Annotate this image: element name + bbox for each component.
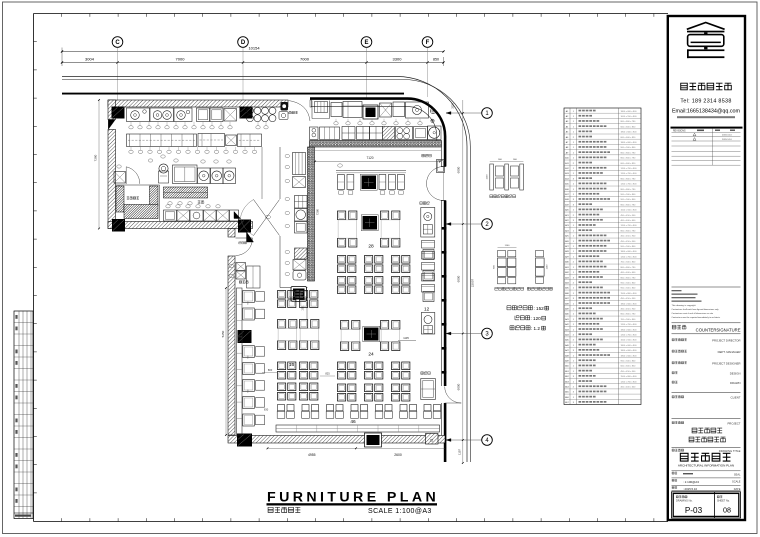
svg-text:Contractors must check all dim: Contractors must check all dimensions on… xyxy=(672,312,714,315)
svg-text:2600: 2600 xyxy=(394,453,402,457)
svg-text:6000: 6000 xyxy=(457,275,461,282)
svg-text:600 x 600 x 850: 600 x 600 x 850 xyxy=(621,126,637,128)
svg-text:1800 x 600 x 800: 1800 x 600 x 800 xyxy=(621,355,638,357)
svg-text:Contractors shall work from fi: Contractors shall work from figured dime… xyxy=(672,308,720,311)
svg-text:7000: 7000 xyxy=(176,57,186,62)
svg-text:DRAWN: DRAWN xyxy=(730,381,740,385)
svg-text:630: 630 xyxy=(264,408,269,412)
svg-text:ARCHITECTURAL INFORMATION PLAN: ARCHITECTURAL INFORMATION PLAN xyxy=(678,463,734,467)
svg-text:1100: 1100 xyxy=(505,245,510,247)
svg-text:1500 x 800 x 800: 1500 x 800 x 800 xyxy=(621,376,638,378)
svg-text:1800 x 600 x 800: 1800 x 600 x 800 xyxy=(621,111,638,113)
svg-text:7120: 7120 xyxy=(366,156,373,160)
svg-text:22: 22 xyxy=(430,439,434,443)
svg-text:1200 x 700 x 800: 1200 x 700 x 800 xyxy=(621,324,638,326)
svg-text:900 x 500 x 800: 900 x 500 x 800 xyxy=(621,288,637,290)
svg-text:800 x 800 x 780: 800 x 800 x 780 xyxy=(621,178,637,180)
svg-text:1800 x 600 x 800: 1800 x 600 x 800 xyxy=(621,142,638,144)
svg-text:1107: 1107 xyxy=(458,449,462,455)
svg-text:800 x 800 x 780: 800 x 800 x 780 xyxy=(621,267,637,269)
svg-text:1200 x 700 x 800: 1200 x 700 x 800 xyxy=(621,256,638,258)
svg-text:700 x 500 x 800: 700 x 500 x 800 xyxy=(621,262,637,264)
svg-text:900 x 500 x 800: 900 x 500 x 800 xyxy=(621,199,637,201)
svg-text:COUNTERSIGNATURE: COUNTERSIGNATURE xyxy=(696,328,741,333)
svg-text:7000: 7000 xyxy=(300,57,310,62)
svg-text:900 x 500 x 800: 900 x 500 x 800 xyxy=(621,360,637,362)
svg-text:SEAL: SEAL xyxy=(734,472,741,476)
svg-text:24: 24 xyxy=(368,352,374,358)
svg-text:450 x 450 x 900: 450 x 450 x 900 xyxy=(621,241,637,243)
svg-text:900 x 500 x 800: 900 x 500 x 800 xyxy=(621,246,637,248)
svg-text:2000: 2000 xyxy=(452,103,455,109)
svg-text:800 x 800 x 780: 800 x 800 x 780 xyxy=(621,314,637,316)
svg-text:3300: 3300 xyxy=(393,57,403,62)
svg-text:6000: 6000 xyxy=(457,383,461,390)
svg-text:450 x 450 x 900: 450 x 450 x 900 xyxy=(621,371,637,373)
svg-text:: 1:100@A3: : 1:100@A3 xyxy=(683,480,699,484)
svg-text:P-03: P-03 xyxy=(685,506,703,515)
svg-text:Tel: 189 2314 8538: Tel: 189 2314 8538 xyxy=(680,99,731,105)
svg-text:SCALE 1:100@A3: SCALE 1:100@A3 xyxy=(368,508,432,515)
svg-text:600 x 600 x 850: 600 x 600 x 850 xyxy=(621,163,637,165)
svg-text:1800 x 600 x 800: 1800 x 600 x 800 xyxy=(621,350,638,352)
svg-text:800 x 800 x 780: 800 x 800 x 780 xyxy=(621,204,637,206)
svg-text:450 x 450 x 900: 450 x 450 x 900 xyxy=(621,298,637,300)
svg-text:400 x 400 x 600: 400 x 400 x 600 xyxy=(621,272,637,274)
svg-text:900 x 500 x 800: 900 x 500 x 800 xyxy=(621,194,637,196)
svg-text:22007: 22007 xyxy=(471,278,475,287)
svg-text:PROJECT DESIGNER: PROJECT DESIGNER xyxy=(712,362,740,366)
svg-text:PROJECT: PROJECT xyxy=(727,421,740,425)
svg-text:1200 x 700 x 800: 1200 x 700 x 800 xyxy=(621,184,638,186)
svg-text:450 x 450 x 900: 450 x 450 x 900 xyxy=(621,308,637,310)
svg-text:08: 08 xyxy=(723,506,731,515)
svg-text:10154: 10154 xyxy=(248,46,260,51)
svg-text:3004: 3004 xyxy=(85,57,95,62)
svg-text:1800 x 600 x 800: 1800 x 600 x 800 xyxy=(621,329,638,331)
svg-text:1800 x 600 x 800: 1800 x 600 x 800 xyxy=(621,132,638,134)
svg-text:12: 12 xyxy=(424,307,430,312)
svg-text:16: 16 xyxy=(289,362,295,368)
svg-text:1200 x 700 x 800: 1200 x 700 x 800 xyxy=(621,381,638,383)
svg-text:6000: 6000 xyxy=(457,166,461,173)
svg-text:Email:1665138434@qq.com: Email:1665138434@qq.com xyxy=(672,109,741,115)
svg-text:: 120: : 120 xyxy=(531,316,542,321)
svg-text:900 x 500 x 800: 900 x 500 x 800 xyxy=(621,147,637,149)
svg-text:1000 x 550 x 800: 1000 x 550 x 800 xyxy=(621,210,638,212)
svg-text:SHEET No.: SHEET No. xyxy=(717,500,730,503)
svg-text:800 x 800 x 780: 800 x 800 x 780 xyxy=(621,189,637,191)
svg-text:: 152: : 152 xyxy=(534,306,545,311)
svg-text:1800 x 600 x 800: 1800 x 600 x 800 xyxy=(621,303,638,305)
svg-text:DEPT. MANAGER: DEPT. MANAGER xyxy=(718,350,741,354)
svg-text:7280: 7280 xyxy=(316,208,320,215)
svg-text:REVISIONS: REVISIONS xyxy=(673,131,686,133)
svg-text:700 x 500 x 800: 700 x 500 x 800 xyxy=(621,319,637,321)
svg-text:DATE: DATE xyxy=(734,487,741,491)
svg-text:1200 x 700 x 800: 1200 x 700 x 800 xyxy=(621,334,638,336)
svg-text:DRAWING No.: DRAWING No. xyxy=(676,500,693,503)
svg-text:1200 x 700 x 800: 1200 x 700 x 800 xyxy=(621,168,638,170)
svg-text:825: 825 xyxy=(325,372,330,376)
svg-text:Contractors must be reported i: Contractors must be reported immediately… xyxy=(672,316,721,319)
svg-text:850: 850 xyxy=(433,58,439,62)
svg-text:: 1.2: : 1.2 xyxy=(531,326,540,331)
svg-text:28: 28 xyxy=(368,244,374,250)
svg-text:1200 x 700 x 800: 1200 x 700 x 800 xyxy=(621,225,638,227)
svg-text:600 x 600 x 850: 600 x 600 x 850 xyxy=(621,137,637,139)
svg-text:800: 800 xyxy=(268,368,273,372)
svg-text:7280: 7280 xyxy=(94,154,98,161)
svg-text:1000 x 550 x 800: 1000 x 550 x 800 xyxy=(621,340,638,342)
svg-text:1200 x 700 x 800: 1200 x 700 x 800 xyxy=(621,173,638,175)
svg-text:2015.5.10: 2015.5.10 xyxy=(722,135,733,137)
svg-text:400 x 400 x 600: 400 x 400 x 600 xyxy=(621,220,637,222)
svg-text:800 x 800 x 780: 800 x 800 x 780 xyxy=(621,121,637,123)
svg-text:DRAWING TITLE: DRAWING TITLE xyxy=(719,449,741,453)
svg-text:This drawing is copyright: This drawing is copyright xyxy=(672,304,696,307)
svg-text:E: E xyxy=(364,40,368,46)
svg-text:1000 x 550 x 800: 1000 x 550 x 800 xyxy=(621,116,638,118)
svg-text:2015.5.10: 2015.5.10 xyxy=(722,139,733,141)
svg-text:1800 x 600 x 800: 1800 x 600 x 800 xyxy=(621,345,638,347)
svg-text:1135: 1135 xyxy=(403,336,409,340)
svg-text:400 x 400 x 600: 400 x 400 x 600 xyxy=(621,386,637,388)
svg-text:D: D xyxy=(241,40,246,46)
svg-text:450 x 450 x 900: 450 x 450 x 900 xyxy=(621,236,637,238)
svg-text:C: C xyxy=(115,40,120,46)
svg-text:FURNITURE PLAN: FURNITURE PLAN xyxy=(267,490,439,506)
svg-text:46: 46 xyxy=(350,419,356,425)
svg-text:1800 x 600 x 800: 1800 x 600 x 800 xyxy=(621,251,638,253)
svg-text:1500 x 800 x 800: 1500 x 800 x 800 xyxy=(621,293,638,295)
svg-text:CLIENT: CLIENT xyxy=(731,396,741,400)
svg-text:DESIGN: DESIGN xyxy=(730,372,741,376)
svg-text:800 x 800 x 780: 800 x 800 x 780 xyxy=(621,277,637,279)
svg-text:800 x 800 x 780: 800 x 800 x 780 xyxy=(621,152,637,154)
svg-text:600 x 600 x 850: 600 x 600 x 850 xyxy=(621,366,637,368)
svg-text:4955: 4955 xyxy=(308,453,316,457)
svg-text:F: F xyxy=(426,40,430,46)
svg-text:5250: 5250 xyxy=(221,330,225,337)
svg-text:800 x 800 x 780: 800 x 800 x 780 xyxy=(621,158,637,160)
svg-text:PROJECT DIRECTOR: PROJECT DIRECTOR xyxy=(712,339,740,343)
svg-text:1200: 1200 xyxy=(487,174,489,180)
svg-text:900 x 500 x 800: 900 x 500 x 800 xyxy=(621,282,637,284)
svg-text:800 x 800 x 780: 800 x 800 x 780 xyxy=(621,230,637,232)
svg-text:450 x 450 x 900: 450 x 450 x 900 xyxy=(621,215,637,217)
svg-text:1100: 1100 xyxy=(547,264,549,269)
svg-text:SCALE: SCALE xyxy=(732,480,741,484)
